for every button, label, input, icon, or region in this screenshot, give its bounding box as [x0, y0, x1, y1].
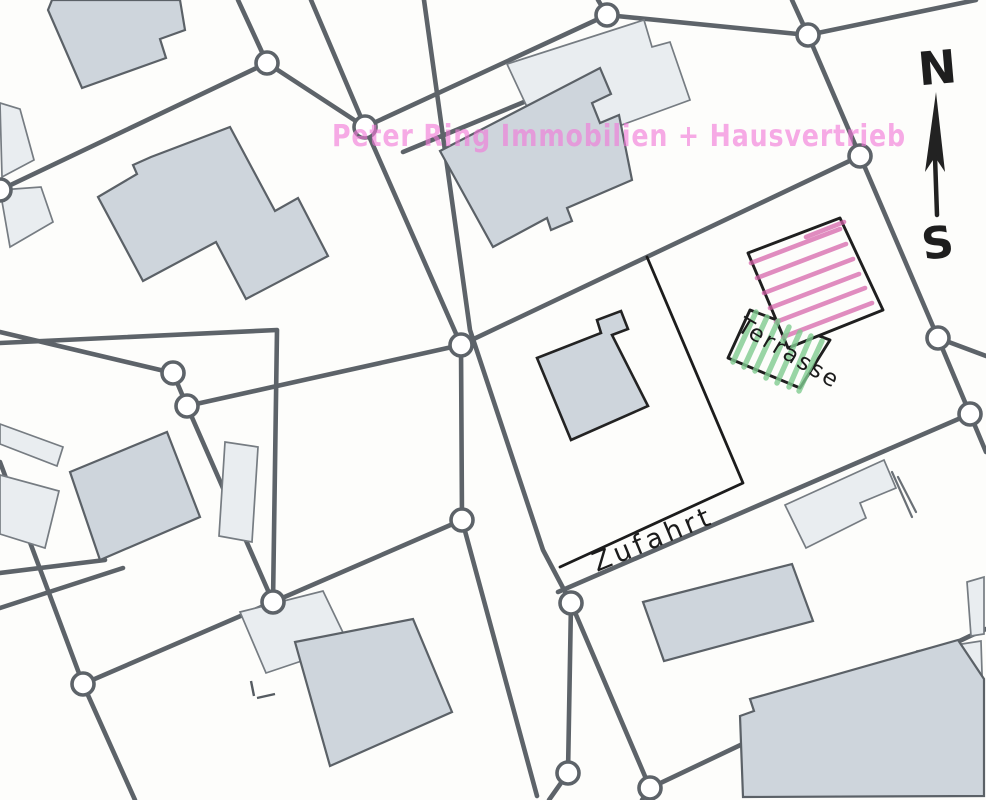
garage-footprint — [785, 460, 896, 548]
boundary-node — [560, 592, 582, 614]
north-arrow-compass: N S — [916, 39, 959, 271]
realtor-watermark: Peter Ring Immobilien + Hausvertrieb — [332, 119, 906, 154]
boundary-node — [450, 334, 472, 356]
boundary-node — [596, 4, 618, 26]
boundary-node — [72, 673, 94, 695]
building-footprint-light — [219, 442, 258, 542]
boundary-node — [639, 777, 661, 799]
boundary-node — [176, 395, 198, 417]
building-footprint-light — [0, 475, 59, 548]
dashed-boundary-tick — [257, 694, 275, 698]
boundary-node — [262, 591, 284, 613]
boundary-node — [797, 24, 819, 46]
fence-spur-lines — [892, 472, 916, 517]
boundary-node — [927, 327, 949, 349]
compass-south-label: S — [918, 216, 956, 271]
compass-north-label: N — [916, 39, 959, 96]
dashed-boundary-tick — [251, 681, 254, 696]
driveway-label: Zufahrt — [588, 501, 719, 579]
boundary-node — [557, 762, 579, 784]
boundary-node — [451, 509, 473, 531]
site-plan-page: Terrasse Zufahrt Peter Ring Immobilien +… — [0, 0, 986, 800]
building-footprint — [643, 564, 813, 661]
boundary-node — [959, 403, 981, 425]
building-footprint — [295, 619, 452, 766]
site-plan-map: Terrasse Zufahrt Peter Ring Immobilien +… — [0, 0, 986, 800]
building-footprint-light — [967, 577, 984, 636]
building-footprint — [70, 432, 200, 560]
north-arrow-shaft — [935, 157, 937, 215]
building-footprint — [740, 640, 984, 797]
building-footprint — [48, 0, 185, 88]
subject-house-footprint — [537, 311, 648, 440]
boundary-node — [162, 362, 184, 384]
boundary-node — [0, 179, 11, 201]
boundary-node — [256, 52, 278, 74]
building-footprint-light — [0, 424, 63, 466]
building-footprint-light — [0, 103, 34, 177]
building-footprint — [98, 127, 328, 299]
